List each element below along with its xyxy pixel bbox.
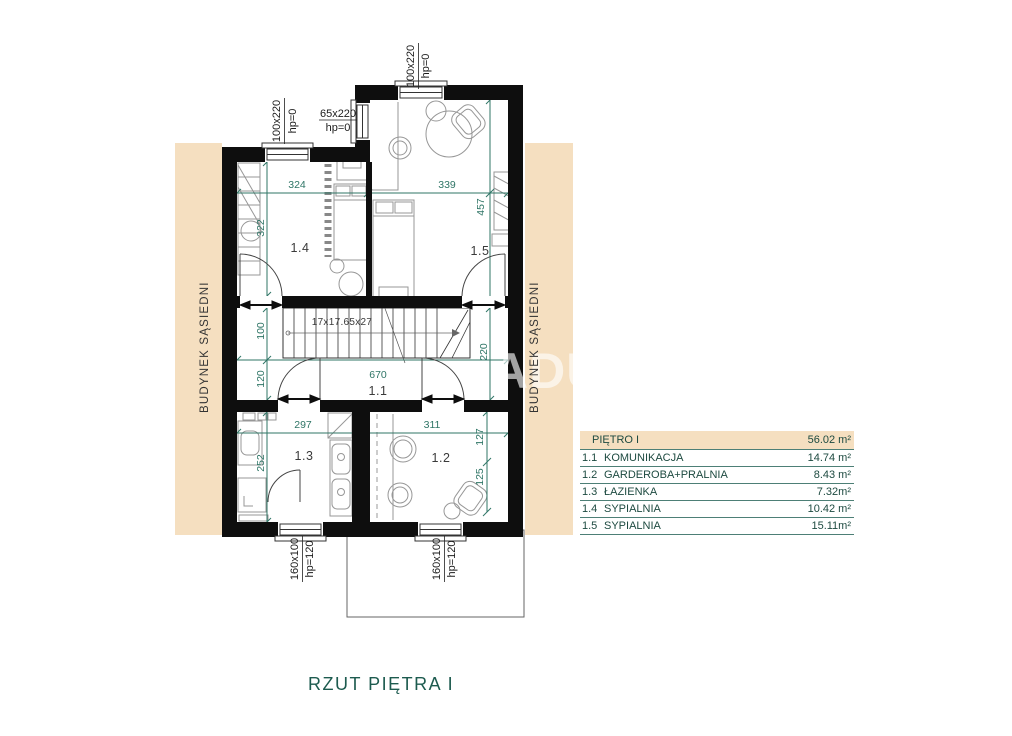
window-hp-top-right: hp=0 <box>420 54 432 79</box>
basket-icon <box>388 483 412 507</box>
row-number: 1.5 <box>582 520 604 532</box>
table-icon <box>426 111 472 157</box>
dim-220: 220 <box>478 343 490 361</box>
room-label-1-1: 1.1 <box>369 384 388 398</box>
vent-icon <box>243 413 255 420</box>
dim-125: 125 <box>474 468 486 486</box>
table-row: 1.3 ŁAZIENKA 7.32m² <box>580 484 854 501</box>
window-hp-side-left: hp=0 <box>326 122 351 134</box>
row-name: SYPIALNIA <box>604 520 811 532</box>
shower-icon <box>238 478 268 521</box>
shower-door-arc <box>268 470 300 502</box>
vent-icon <box>268 413 276 420</box>
dim-457: 457 <box>475 198 487 216</box>
toilet-icon <box>328 413 352 438</box>
table-row: 1.4 SYPIALNIA 10.42 m² <box>580 501 854 518</box>
dim-339: 339 <box>438 179 456 191</box>
room-label-1-4: 1.4 <box>291 241 310 255</box>
row-name: GARDEROBA+PRALNIA <box>604 469 814 481</box>
row-number: 1.2 <box>582 469 604 481</box>
dim-311: 311 <box>424 419 441 431</box>
window-size-bottom-left: 160x100 <box>289 538 301 580</box>
row-number: 1.1 <box>582 452 604 464</box>
window-size-top-right: 100x220 <box>405 45 417 87</box>
stairs-label: 17x17.65x27 <box>312 317 373 328</box>
wardrobe-icon <box>238 163 260 275</box>
pouf-icon <box>339 272 363 296</box>
room-label-1-3: 1.3 <box>295 449 314 463</box>
row-name: KOMUNIKACJA <box>604 452 808 464</box>
window-hp-bottom-left: hp=120 <box>304 540 316 577</box>
table-row: 1.5 SYPIALNIA 15.11m² <box>580 518 854 535</box>
window-size-top-left: 100x220 <box>271 100 283 142</box>
nook-line <box>372 102 398 190</box>
row-name: ŁAZIENKA <box>604 486 817 498</box>
pouf-icon <box>330 259 344 273</box>
stairs <box>283 303 470 363</box>
page-title: RZUT PIĘTRA I <box>308 674 454 695</box>
dim-322: 322 <box>255 219 267 237</box>
row-number: 1.3 <box>582 486 604 498</box>
dim-297: 297 <box>294 419 312 431</box>
sink-icon <box>330 440 352 516</box>
neighbor-label-right: BUDYNEK SĄSIEDNI <box>529 247 541 447</box>
row-area: 15.11m² <box>811 520 851 532</box>
row-number: 1.4 <box>582 503 604 515</box>
row-area: 14.74 m² <box>808 452 851 464</box>
bed-icon <box>334 184 368 260</box>
window-size-side-left: 65x220 <box>320 108 356 120</box>
window-hp-top-left: hp=0 <box>287 109 299 134</box>
chair-icon <box>426 101 446 121</box>
area-table-header: PIĘTRO I 56.02 m² <box>580 431 854 450</box>
table-row: 1.2 GARDEROBA+PRALNIA 8.43 m² <box>580 467 854 484</box>
row-area: 8.43 m² <box>814 469 851 481</box>
dim-127: 127 <box>474 428 486 446</box>
dim-670: 670 <box>369 369 387 381</box>
dim-252: 252 <box>255 454 267 472</box>
dim-120: 120 <box>255 370 267 388</box>
window-side-left <box>351 100 370 143</box>
window-size-bottom-right: 160x100 <box>431 538 443 580</box>
window-top-left <box>262 143 313 162</box>
window-hp-bottom-right: hp=120 <box>446 540 458 577</box>
room-label-1-5: 1.5 <box>471 244 490 258</box>
row-area: 7.32m² <box>817 486 851 498</box>
room-label-1-2: 1.2 <box>432 451 451 465</box>
row-name: SYPIALNIA <box>604 503 808 515</box>
bed-icon <box>373 200 414 300</box>
neighbor-label-left: BUDYNEK SĄSIEDNI <box>199 247 211 447</box>
room-1-5-furniture <box>372 101 516 300</box>
basket-icon <box>390 436 416 462</box>
floor-total-area: 56.02 m² <box>808 434 851 446</box>
stool-icon <box>444 503 460 519</box>
row-area: 10.42 m² <box>808 503 851 515</box>
table-row: 1.1 KOMUNIKACJA 14.74 m² <box>580 450 854 467</box>
area-table: PIĘTRO I 56.02 m² 1.1 KOMUNIKACJA 14.74 … <box>580 431 854 535</box>
floor-label: PIĘTRO I <box>592 434 639 446</box>
chair-icon <box>389 137 411 159</box>
window-top-right <box>395 81 447 100</box>
watermark: ADU <box>492 342 603 400</box>
floor-plan-page: 324 339 322 457 100 120 220 670 297 311 … <box>0 0 1012 736</box>
dim-100: 100 <box>255 322 267 340</box>
dim-324: 324 <box>288 179 306 191</box>
